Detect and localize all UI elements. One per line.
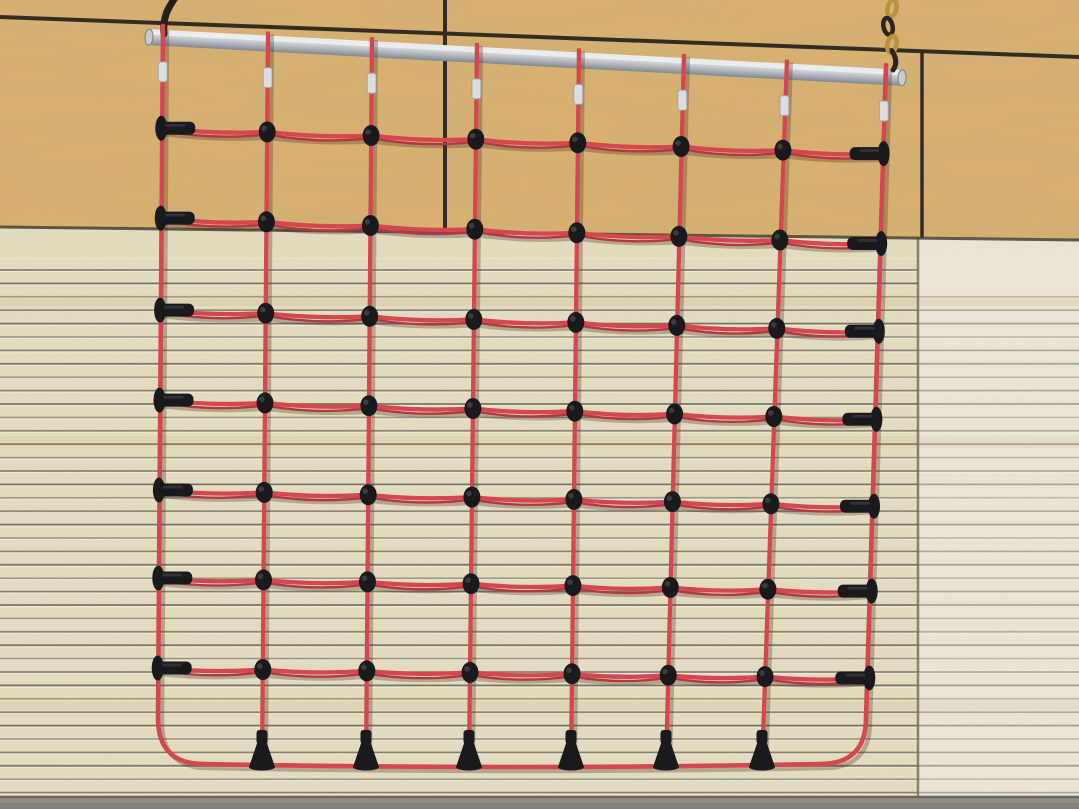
rope-cross-connector [360,484,377,505]
rope-end-cap-left-head [155,116,167,141]
rope-cross-connector [660,665,677,686]
rope-end-cap-left-head [155,206,167,231]
rope-cross-connector [768,318,785,339]
cap-highlight [845,674,865,677]
rope-end-cap-left-head [153,478,165,503]
rope-cross-connector [765,406,782,427]
connector-highlight [570,316,576,322]
connector-highlight [662,669,668,675]
rope-cross-connector [664,491,681,512]
rope-bottom-cap-base [456,764,482,771]
rope-cross-connector [567,312,584,333]
cap-highlight [165,124,185,127]
rope-cross-connector [670,226,687,247]
cap-highlight [162,664,182,667]
rope-cross-connector [565,489,582,510]
connector-highlight [261,216,267,222]
connector-highlight [568,493,574,499]
rope-cross-connector [568,222,585,243]
rope-end-cap-right-head [878,141,890,166]
rope-end-cap-right-head [870,407,882,432]
rope-bottom-cap-barrel [757,730,768,744]
connector-highlight [365,129,371,135]
rope-cross-connector [564,575,581,596]
rope-cross-connector [362,215,379,236]
rope-crimp-sleeve [158,62,167,82]
connector-highlight [260,307,266,313]
rope-cross-connector [771,230,788,251]
connector-highlight [261,126,267,132]
connector-highlight [257,663,263,669]
connector-highlight [759,670,765,676]
connector-highlight [571,227,577,233]
connector-highlight [362,576,368,582]
rope-cross-connector [566,401,583,422]
rope-crimp-sleeve [879,101,888,121]
rope-cross-connector [254,659,271,680]
rope-cross-connector [569,132,586,153]
cap-highlight [860,149,880,152]
rope-cross-connector [757,666,774,687]
rope-cross-connector [257,392,274,413]
connector-highlight [258,486,264,492]
rope-cross-connector [465,309,482,330]
rope-cross-connector [463,487,480,508]
rope-end-cap-right-head [873,319,885,344]
floor-lower [0,803,1079,809]
rope-end-cap-right-head [866,579,878,604]
rope-cross-connector [774,140,791,161]
rope-cross-connector [255,569,272,590]
cap-highlight [848,587,868,590]
connector-highlight [774,234,780,240]
connector-highlight [566,668,572,674]
rope-cross-connector [759,579,776,600]
connector-highlight [762,583,768,589]
rope-cross-connector [363,125,380,146]
rope-cross-connector [359,571,376,592]
connector-highlight [258,574,264,580]
connector-highlight [669,408,675,414]
bar-end-left [145,29,154,45]
cap-highlight [162,574,182,577]
rope-bottom-cap-base [653,764,679,771]
rope-cross-connector [662,577,679,598]
cap-highlight [164,306,184,309]
climbing-net-photo [0,0,1079,809]
connector-highlight [464,666,470,672]
rope-crimp-sleeve [472,79,481,99]
rope-crimp-sleeve [678,90,687,110]
connector-highlight [469,223,475,229]
rope-cross-connector [762,493,779,514]
rope-bottom-cap-barrel [566,730,577,744]
cap-highlight [165,214,185,217]
connector-highlight [468,313,474,319]
rope-cross-connector [464,398,481,419]
rope-cross-connector [466,219,483,240]
cap-highlight [850,502,870,505]
rope-cross-connector [361,306,378,327]
connector-highlight [667,495,673,501]
rope-end-cap-right-head [868,494,880,519]
rope-cross-connector [463,573,480,594]
rope-cross-connector [666,403,683,424]
rope-cross-connector [256,482,273,503]
rope-cross-connector [360,395,377,416]
rope-cross-connector [462,662,479,683]
rope-bottom-cap-barrel [361,730,372,744]
connector-highlight [466,491,472,497]
rope-cross-connector [258,211,275,232]
rope-end-cap-right-head [863,666,875,691]
connector-highlight [361,665,367,671]
rope-bottom-cap-barrel [661,730,672,744]
connector-highlight [567,579,573,585]
connector-highlight [765,498,771,504]
rope-bottom-cap-base [749,764,775,771]
rope-bottom-cap-barrel [257,730,268,744]
bar-end-right [898,70,907,86]
connector-highlight [365,219,371,225]
rope-cross-connector [467,129,484,150]
rope-crimp-sleeve [263,68,272,88]
rope-cross-connector [673,136,690,157]
connector-highlight [465,577,471,583]
rope-end-cap-left-head [152,656,164,681]
rope-end-cap-left-head [152,566,164,591]
connector-highlight [771,322,777,328]
connector-highlight [470,133,476,139]
connector-highlight [362,489,368,495]
rope-end-cap-left-head [154,298,166,323]
rope-bottom-cap-base [353,764,379,771]
rope-cross-connector [564,663,581,684]
connector-highlight [777,144,783,150]
rope-end-cap-right-head [875,231,887,256]
rope-cross-connector [358,660,375,681]
connector-highlight [665,581,671,587]
rope-bottom-cap-base [249,764,275,771]
cap-highlight [857,239,877,242]
connector-highlight [675,140,681,146]
cap-highlight [852,415,872,418]
rope-cross-connector [259,121,276,142]
rope-crimp-sleeve [574,84,583,104]
rope-crimp-sleeve [780,96,789,116]
connector-highlight [673,230,679,236]
connector-highlight [572,137,578,143]
rope-bottom-cap-barrel [464,730,475,744]
cap-highlight [855,327,875,330]
cap-highlight [164,396,184,399]
rope-end-cap-left-head [154,388,166,413]
connector-highlight [467,402,473,408]
connector-highlight [671,319,677,325]
connector-highlight [363,399,369,405]
rope-cross-connector [668,315,685,336]
connector-highlight [569,405,575,411]
rope-crimp-sleeve [367,73,376,93]
rope-bottom-cap-base [558,764,584,771]
connector-highlight [768,410,774,416]
connector-highlight [259,397,265,403]
photo-canvas [0,0,1079,809]
connector-highlight [364,310,370,316]
cap-highlight [163,486,183,489]
rope-cross-connector [257,303,274,324]
